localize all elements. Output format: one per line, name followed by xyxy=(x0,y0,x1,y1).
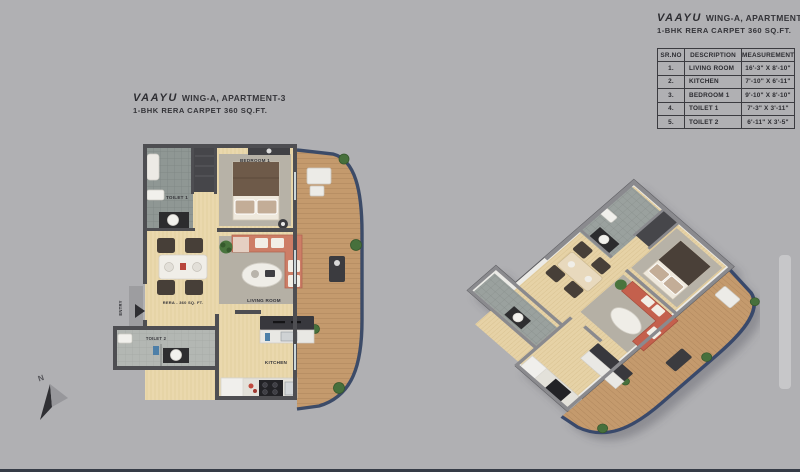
bedroom-dresser-bowl xyxy=(267,149,272,154)
col-header-measurement: MEASUREMENT xyxy=(742,49,795,62)
floor-plan-3d xyxy=(450,140,760,450)
cell-measurement: 7'-10" X 6'-11" xyxy=(742,75,795,88)
cell-srno: 1. xyxy=(658,62,685,75)
table-header-row: SR.NO DESCRIPTION MEASUREMENT xyxy=(658,49,795,62)
cell-description: KITCHEN xyxy=(685,75,742,88)
cell-measurement: 16'-3" X 8'-10" xyxy=(742,62,795,75)
left-plan-title-text: WING-A, APARTMENT-3 xyxy=(182,93,286,103)
cell-measurement: 6'-11" X 3'-5" xyxy=(742,115,795,128)
entry-label: ENTRY xyxy=(118,300,123,315)
col-header-description: DESCRIPTION xyxy=(685,49,742,62)
cell-description: LIVING ROOM xyxy=(685,62,742,75)
cell-measurement: 7'-3" X 3'-11" xyxy=(742,102,795,115)
bed xyxy=(233,162,279,220)
table-row: 5. TOILET 2 6'-11" X 3'-5" xyxy=(658,115,795,128)
left-plan-subtitle: 1-BHK RERA CARPET 360 SQ.FT. xyxy=(133,106,286,115)
toilet1-label: TOILET 1 xyxy=(166,195,188,200)
floor-plan-2d: BEDROOM 1 TOILET 1 LIVING ROOM KITCHEN T… xyxy=(105,138,375,448)
brand-logo-text: VAAYU xyxy=(657,12,702,24)
area-label: RERA - 360 SQ. FT. xyxy=(163,300,204,305)
cell-measurement: 9'-10" X 8'-10" xyxy=(742,89,795,102)
wardrobe xyxy=(193,146,217,192)
balcony-unit-dial xyxy=(334,260,340,266)
living-room-label: LIVING ROOM xyxy=(247,298,281,303)
balcony-lounger xyxy=(307,168,331,184)
cell-description: BEDROOM 1 xyxy=(685,89,742,102)
bedroom-label: BEDROOM 1 xyxy=(240,158,270,163)
left-plan-title: VAAYUWING-A, APARTMENT-3 1-BHK RERA CARP… xyxy=(133,92,286,115)
table-row: 4. TOILET 1 7'-3" X 3'-11" xyxy=(658,102,795,115)
north-arrow-dark-blade xyxy=(40,384,52,420)
kitchen-counter xyxy=(221,378,297,398)
north-arrow-light-blade xyxy=(50,384,68,407)
cell-description: TOILET 2 xyxy=(685,115,742,128)
spec-panel-title: VAAYUWING-A, APARTMENT-3 1-BHK RERA CARP… xyxy=(657,12,800,35)
spec-panel-title-text: WING-A, APARTMENT-3 xyxy=(706,13,800,23)
bedroom-stool-top xyxy=(281,222,285,226)
cell-srno: 3. xyxy=(658,89,685,102)
balcony-side-table xyxy=(310,186,324,196)
col-header-srno: SR.NO xyxy=(658,49,685,62)
north-label: N xyxy=(37,373,45,383)
isometric-unit xyxy=(450,162,760,450)
table-row: 2. KITCHEN 7'-10" X 6'-11" xyxy=(658,75,795,88)
balcony xyxy=(297,150,362,409)
spec-panel-subtitle: 1-BHK RERA CARPET 360 SQ.FT. xyxy=(657,26,800,35)
spec-panel-title-line1: VAAYUWING-A, APARTMENT-3 xyxy=(657,12,800,26)
cell-srno: 2. xyxy=(658,75,685,88)
living-plant xyxy=(220,241,233,254)
brand-logo-text: VAAYU xyxy=(133,92,178,104)
kitchen-label: KITCHEN xyxy=(265,360,288,365)
cell-srno: 4. xyxy=(658,102,685,115)
north-arrow: N xyxy=(28,368,80,430)
balcony-unit xyxy=(329,256,345,282)
coffee-table xyxy=(242,263,282,287)
table-row: 3. BEDROOM 1 9'-10" X 8'-10" xyxy=(658,89,795,102)
measurement-table: SR.NO DESCRIPTION MEASUREMENT 1. LIVING … xyxy=(657,48,795,129)
cell-description: TOILET 1 xyxy=(685,102,742,115)
cell-srno: 5. xyxy=(658,115,685,128)
table-row: 1. LIVING ROOM 16'-3" X 8'-10" xyxy=(658,62,795,75)
left-plan-title-line1: VAAYUWING-A, APARTMENT-3 xyxy=(133,92,286,106)
scrollbar-thumb[interactable] xyxy=(779,255,791,389)
kitchen-island xyxy=(260,316,314,343)
toilet2-label: TOILET 2 xyxy=(146,336,167,341)
